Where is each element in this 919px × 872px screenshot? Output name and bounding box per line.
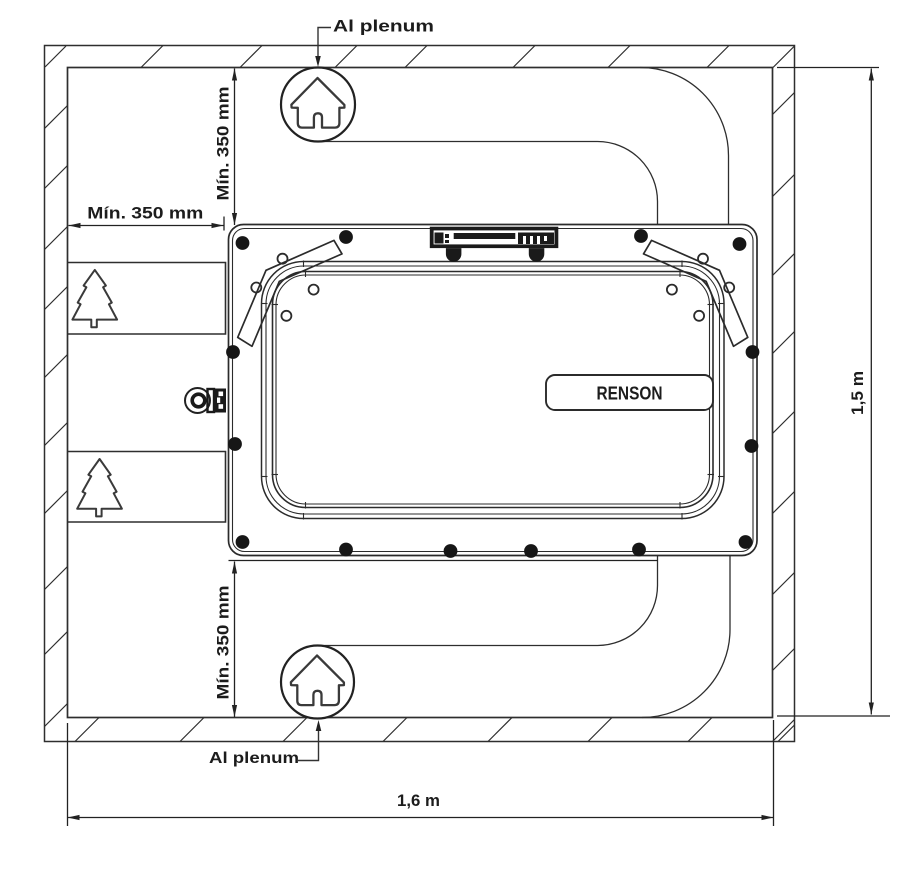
svg-text:Mín. 350 mm: Mín. 350 mm [214, 586, 233, 700]
svg-text:RENSON: RENSON [597, 383, 663, 403]
svg-text:Mín. 350 mm: Mín. 350 mm [87, 204, 203, 223]
svg-text:1,6 m: 1,6 m [397, 791, 440, 810]
svg-text:Al plenum: Al plenum [209, 750, 299, 767]
svg-text:1,5 m: 1,5 m [848, 371, 867, 415]
svg-text:Al plenum: Al plenum [333, 17, 434, 36]
svg-text:Mín. 350 mm: Mín. 350 mm [214, 87, 233, 201]
